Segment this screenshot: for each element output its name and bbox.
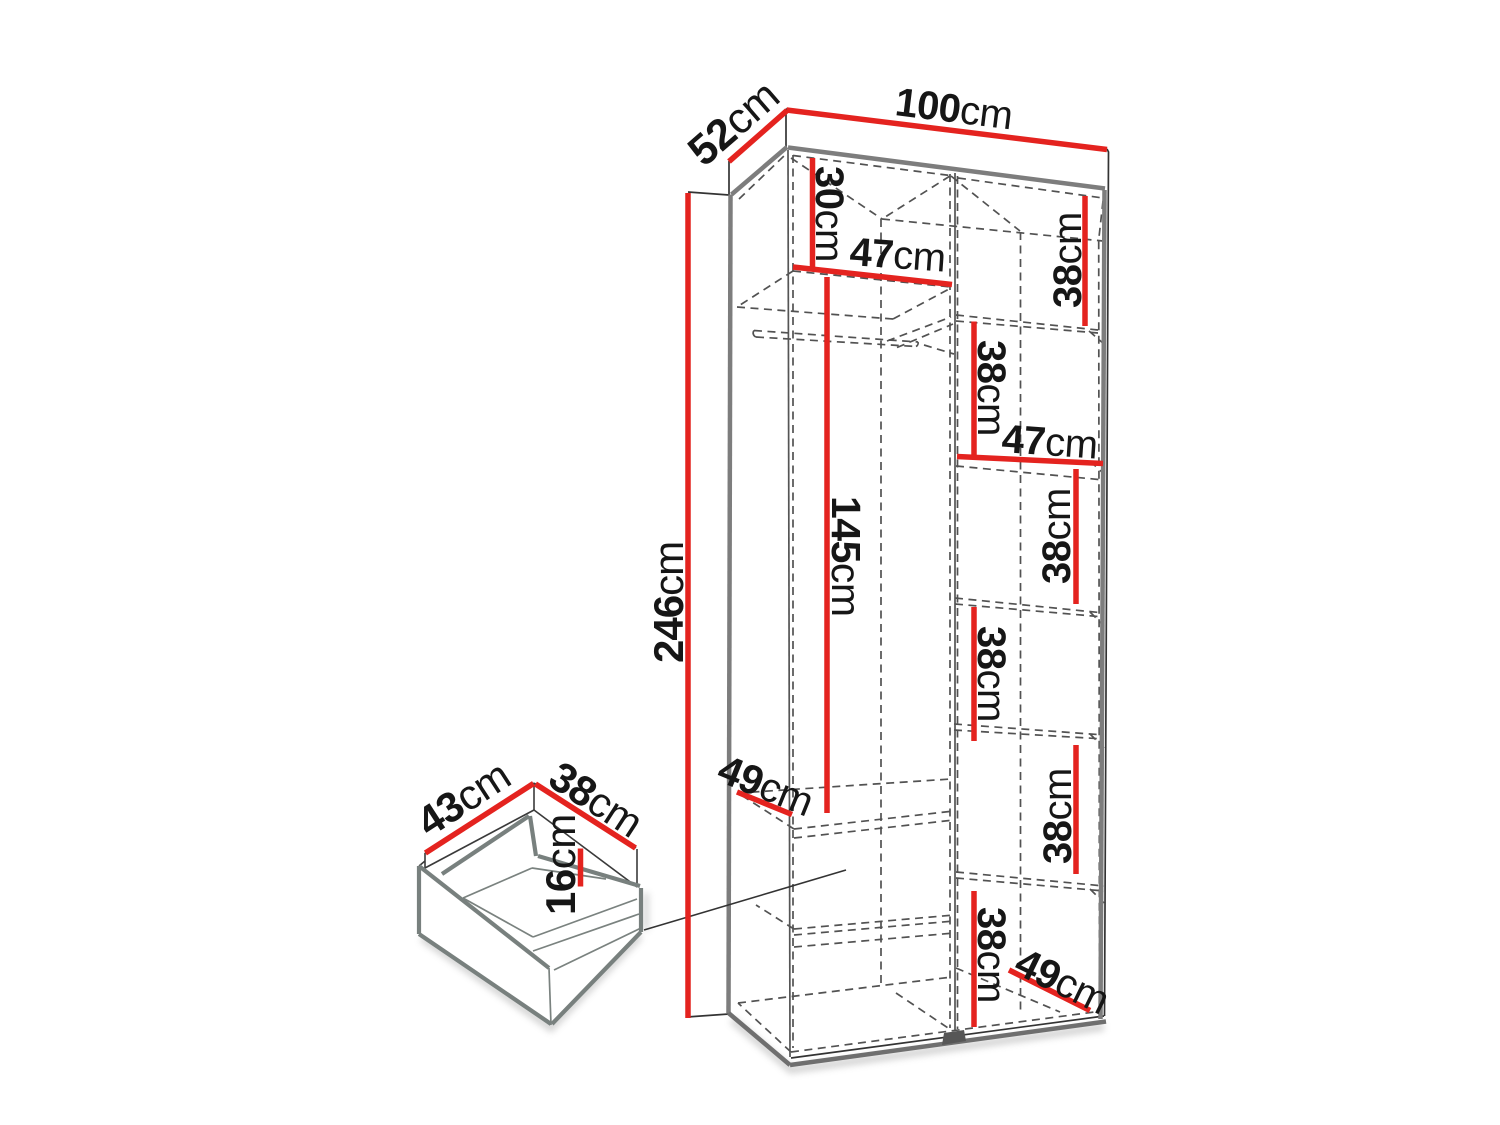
- svg-text:246cm: 246cm: [645, 542, 692, 663]
- svg-text:38cm: 38cm: [1035, 488, 1079, 584]
- svg-text:38cm: 38cm: [969, 907, 1013, 1003]
- svg-text:47cm: 47cm: [848, 230, 947, 281]
- svg-text:30cm: 30cm: [807, 166, 851, 262]
- svg-text:38cm: 38cm: [1036, 768, 1080, 864]
- svg-text:16cm: 16cm: [537, 814, 584, 915]
- svg-text:38cm: 38cm: [1046, 212, 1090, 308]
- svg-text:38cm: 38cm: [969, 626, 1013, 722]
- svg-text:145cm: 145cm: [823, 496, 869, 617]
- svg-text:47cm: 47cm: [1000, 417, 1099, 468]
